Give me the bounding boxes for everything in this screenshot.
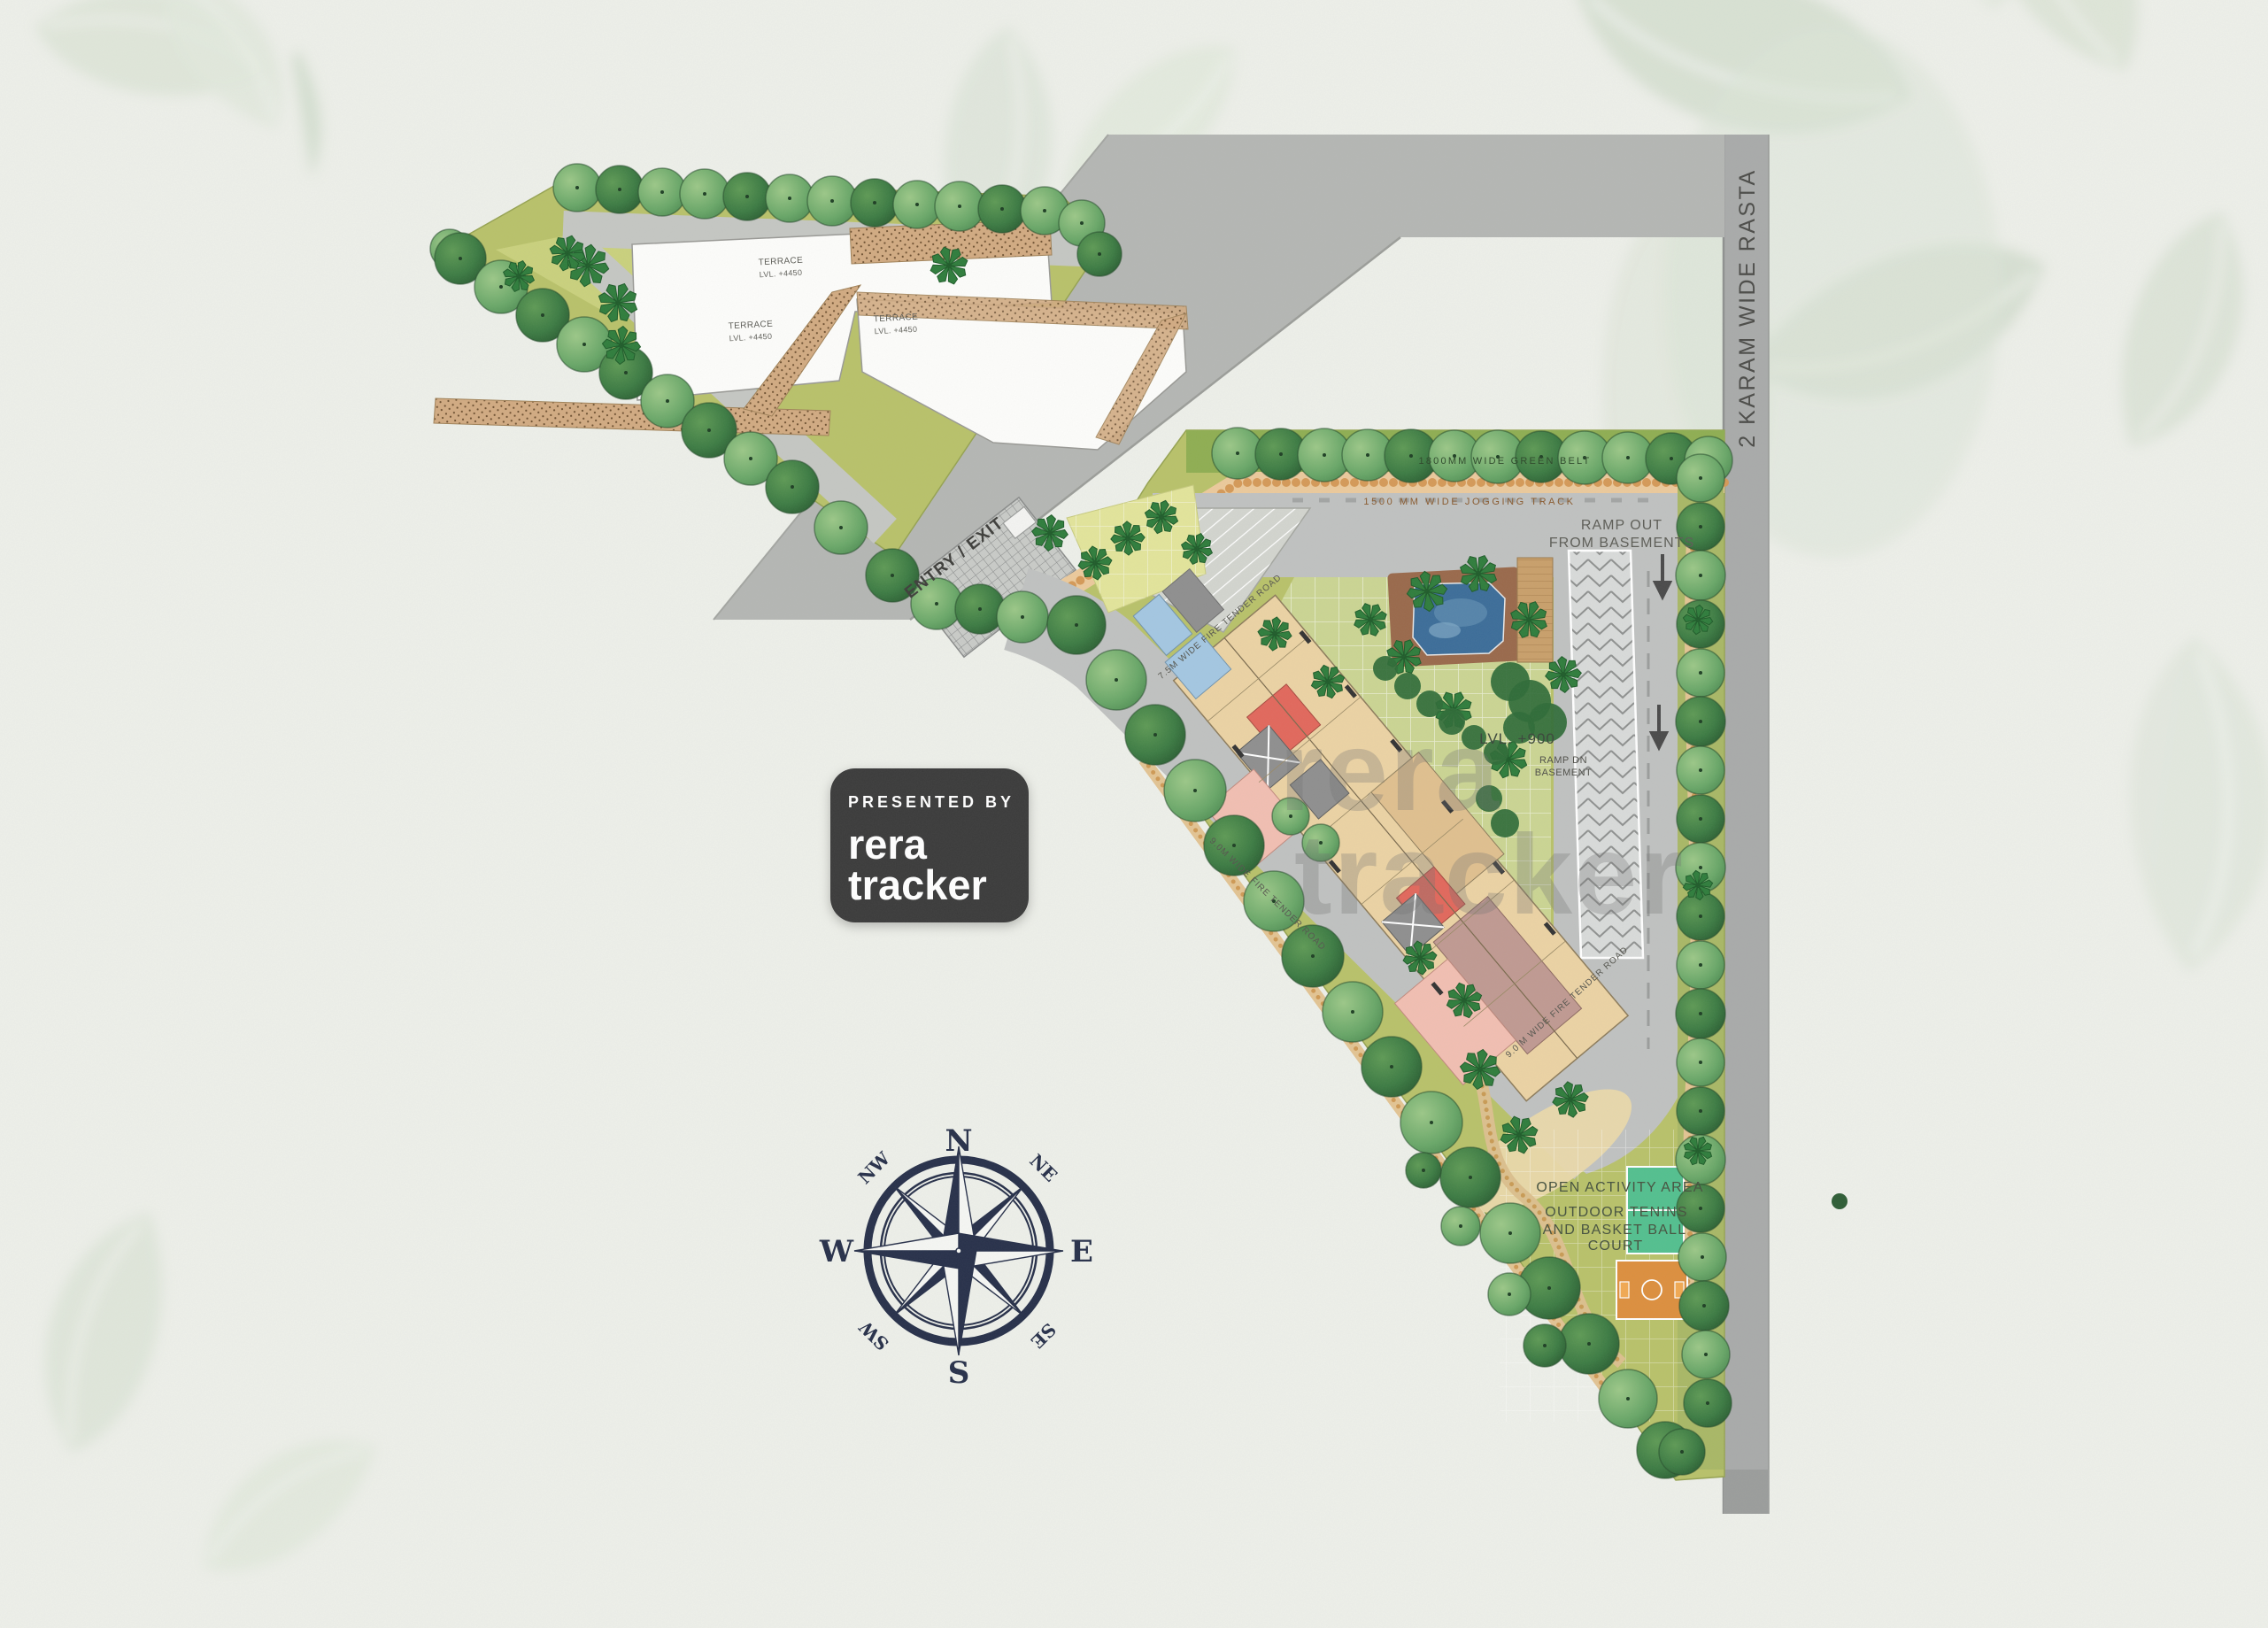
site-plan-poster: 2 KARAM WIDE RASTA ENTRY / EXIT 1800MM W… xyxy=(0,0,2268,1628)
site-plan-svg: 2 KARAM WIDE RASTA ENTRY / EXIT 1800MM W… xyxy=(0,0,2268,1628)
paper-grain xyxy=(0,0,2268,1628)
